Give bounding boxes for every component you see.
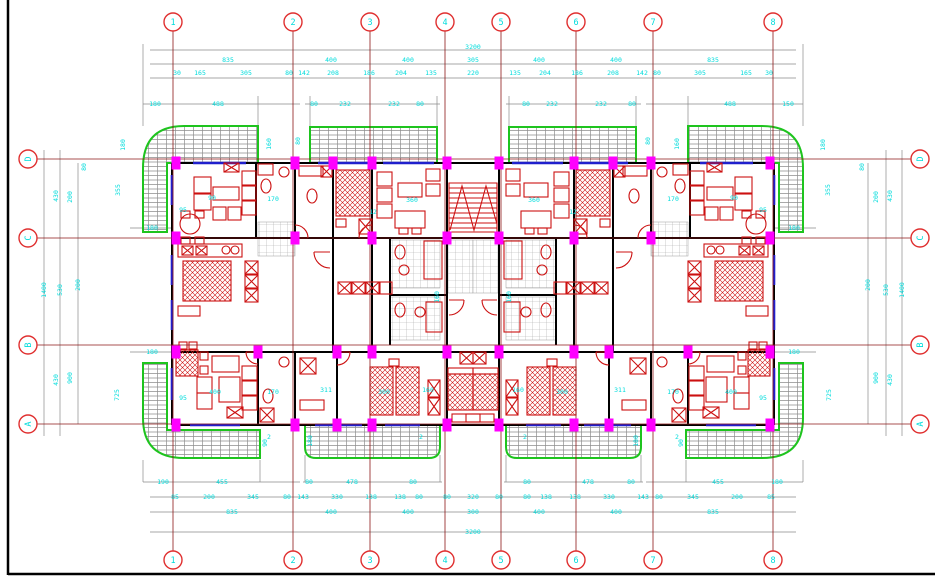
bed [336,170,370,216]
bed [448,374,473,410]
cad-floor-plan-viewport: 1234567812345678DCBADCBA 320083540040030… [0,0,935,581]
dimension-text: 85 [767,493,775,501]
dimension-text: 835 [222,56,234,64]
dimension-text: 80 [409,478,417,486]
dimension-text: 160 [512,386,524,394]
dimension-text: 165 [740,69,752,77]
column [172,346,181,359]
dimension-text: 95 [759,206,767,214]
grid-bubble-left-label: C [24,235,34,240]
bed [715,261,763,301]
dimension-text: 80 [294,137,302,145]
dimension-text: 170 [267,388,279,396]
dimension-text: 80 [495,493,503,501]
dimension-text: 400 [325,508,337,516]
column [291,232,300,245]
dimension-text: 430 [886,374,894,386]
dimension-text: 30 [173,69,181,77]
dimension-text: 400 [325,56,337,64]
dimension-text: 478 [582,478,594,486]
column [647,157,656,170]
dimension-text: 232 [388,100,400,108]
column [605,419,614,432]
column [368,157,377,170]
column [570,157,579,170]
column [172,232,181,245]
grid-bubble-top-label: 8 [770,18,775,28]
column [766,157,775,170]
dimension-text: 80 [415,493,423,501]
dimension-text: 142 [636,69,648,77]
dimension-text: 311 [614,386,626,394]
dimension-text: 220 [467,69,479,77]
dimension-text: 80 [653,69,661,77]
dimension-text: 80 [443,493,451,501]
dimension-text: 80 [522,100,530,108]
column [570,419,579,432]
grid-bubble-left-label: A [24,421,34,426]
column [443,232,452,245]
dimension-text: 345 [687,493,699,501]
dimension-text: 142 [298,69,310,77]
dimension-text: 180 [306,435,314,447]
column [570,346,579,359]
dimension-text: 355 [114,184,122,196]
dimension-text: 835 [707,56,719,64]
dimension-text: 160 [673,138,681,150]
dimension-text: 430 [52,374,60,386]
grid-bubble-top-label: 7 [650,18,655,28]
dimension-text: 143 [297,493,309,501]
dimension-text: 3200 [465,43,481,51]
dimension-text: 80 [627,478,635,486]
dimension-text: 725 [825,389,833,401]
dimension-text: 300 [378,388,390,396]
dimension-text: 90 [208,194,216,202]
dimension-text: 400 [402,56,414,64]
dimension-text: 12 [369,208,377,216]
dimension-text: 138 [569,493,581,501]
column [291,419,300,432]
dimension-text: 80 [283,493,291,501]
dimension-text: 488 [212,100,224,108]
grid-bubble-right-label: B [916,342,926,347]
grid-bubble-top-label: 2 [290,18,295,28]
column [172,419,181,432]
dimension-text: 232 [546,100,558,108]
column [172,157,181,170]
dimension-text: 160 [505,291,513,303]
dimension-text: 900 [66,372,74,384]
column [766,346,775,359]
dimension-text: 430 [886,190,894,202]
dimension-text: 400 [209,388,221,396]
dimension-text: 165 [194,69,206,77]
dimension-text: 80 [523,478,531,486]
dimension-text: 1400 [40,282,48,298]
dimension-text: 80 [310,100,318,108]
grid-bubble-bottom-label: 4 [442,556,447,566]
column [368,419,377,432]
column [766,232,775,245]
dimension-text: 3200 [465,528,481,536]
dimension-text: 12 [569,208,577,216]
dimension-text: 305 [467,56,479,64]
dimension-text: 190 [157,478,169,486]
grid-bubble-left-label: B [24,342,34,347]
dimension-text: 400 [725,388,737,396]
dimension-text: 80 [285,69,293,77]
column [495,157,504,170]
dimension-text: 180 [632,435,640,447]
grid-bubble-bottom-label: 2 [290,556,295,566]
grid-bubble-bottom-label: 7 [650,556,655,566]
dimension-text: 200 [66,191,74,203]
column [766,419,775,432]
dimension-text: 138 [365,493,377,501]
dimension-text: 95 [179,206,187,214]
dimension-text: 180 [771,478,783,486]
dimension-text: 80 [628,100,636,108]
grid-bubble-bottom-label: 6 [573,556,578,566]
dimension-text: 488 [724,100,736,108]
dimension-text: 143 [637,493,649,501]
dimension-text: 180 [788,224,800,232]
dimension-text: 186 [571,69,583,77]
dimension-text: 330 [331,493,343,501]
dimension-text: 80 [644,137,652,145]
dimension-text: 200 [731,493,743,501]
dimension-text: 180 [819,139,827,151]
dimension-text: 180 [146,224,158,232]
dimension-text: 170 [667,388,679,396]
dimension-text: 530 [882,284,890,296]
grid-bubble-top-label: 3 [367,18,372,28]
dimension-text: 400 [610,508,622,516]
dimension-text: 135 [509,69,521,77]
grid-bubble-bottom-label: 3 [367,556,372,566]
dimension-text: 150 [782,100,794,108]
dimension-text: 355 [824,184,832,196]
dimension-text: 232 [339,100,351,108]
grid-bubble-right-label: A [916,421,926,426]
dimension-text: 208 [327,69,339,77]
floor-plan-drawing: 1234567812345678DCBADCBA 320083540040030… [0,0,935,581]
dimension-text: 80 [858,163,866,171]
dimension-text: 204 [539,69,551,77]
column [368,232,377,245]
grid-bubble-bottom-label: 1 [170,556,175,566]
dimension-text: 455 [712,478,724,486]
column [443,157,452,170]
dimension-text: 400 [533,56,545,64]
dimension-text: 180 [146,348,158,356]
dimension-text: 85 [171,493,179,501]
column [570,232,579,245]
dimension-text: 95 [179,394,187,402]
dimension-text: 90 [730,194,738,202]
dimension-text: 200 [74,279,82,291]
dimension-text: 2 [267,433,271,441]
dimension-text: 180 [788,348,800,356]
column [609,157,618,170]
dimension-text: 478 [346,478,358,486]
dimension-text: 360 [528,196,540,204]
grid-bubble-top-label: 5 [498,18,503,28]
grid-bubble-bottom-label: 5 [498,556,503,566]
dimension-text: 360 [406,196,418,204]
column [684,346,693,359]
grid-bubble-right-label: D [916,156,926,161]
dimension-text: 80 [655,493,663,501]
column [647,419,656,432]
dimension-text: 305 [240,69,252,77]
dimension-text: 400 [533,508,545,516]
dimension-text: 1400 [898,282,906,298]
column [291,157,300,170]
dimension-text: 80 [80,163,88,171]
dimension-text: 725 [113,389,121,401]
dimension-text: 300 [556,388,568,396]
bed [473,374,498,410]
column [443,346,452,359]
column [333,346,342,359]
dimension-text: 80 [416,100,424,108]
dimension-text: 160 [422,386,434,394]
dimension-text: 208 [607,69,619,77]
dimension-text: 400 [610,56,622,64]
dimension-text: 345 [247,493,259,501]
dimension-text: 160 [433,291,441,303]
grid-bubble-right-label: C [916,235,926,240]
column [443,419,452,432]
dimension-text: 400 [402,508,414,516]
dimension-text: 80 [305,478,313,486]
grid-bubble-left-label: D [24,156,34,161]
dimension-text: 330 [603,493,615,501]
dimension-text: 186 [363,69,375,77]
dimension-text: 835 [226,508,238,516]
column [368,346,377,359]
bed [527,367,550,415]
dimension-text: 320 [467,493,479,501]
column [495,346,504,359]
bed [183,261,231,301]
dimension-text: 200 [864,279,872,291]
dimension-text: 180 [149,100,161,108]
column [605,346,614,359]
dimension-text: 2 [675,433,679,441]
column [495,419,504,432]
dimension-text: 95 [759,394,767,402]
dimension-text: 305 [694,69,706,77]
dimension-text: 232 [595,100,607,108]
dimension-text: 300 [467,508,479,516]
dimension-text: 311 [320,386,332,394]
grid-bubble-top-label: 4 [442,18,447,28]
dimension-text: 204 [395,69,407,77]
dimension-text: 2 [419,433,423,441]
dimension-text: 180 [119,139,127,151]
dimension-text: 80 [523,493,531,501]
grid-bubble-top-label: 6 [573,18,578,28]
column [495,232,504,245]
dimension-text: 170 [667,195,679,203]
bed [396,367,419,415]
column [254,346,263,359]
dimension-text: 530 [56,284,64,296]
dimension-text: 160 [265,138,273,150]
dimension-text: 2 [523,433,527,441]
column [647,232,656,245]
dimension-text: 30 [765,69,773,77]
column [333,419,342,432]
dimension-text: 835 [707,508,719,516]
dimension-text: 200 [872,191,880,203]
grid-bubble-bottom-label: 8 [770,556,775,566]
dimension-text: 900 [872,372,880,384]
grid-bubble-top-label: 1 [170,18,175,28]
dimension-text: 138 [394,493,406,501]
dimension-text: 170 [267,195,279,203]
bed [576,170,610,216]
dimension-text: 135 [425,69,437,77]
column [329,157,338,170]
dimension-text: 200 [203,493,215,501]
dimension-text: 455 [216,478,228,486]
dimension-text: 138 [540,493,552,501]
dimension-text: 430 [52,190,60,202]
